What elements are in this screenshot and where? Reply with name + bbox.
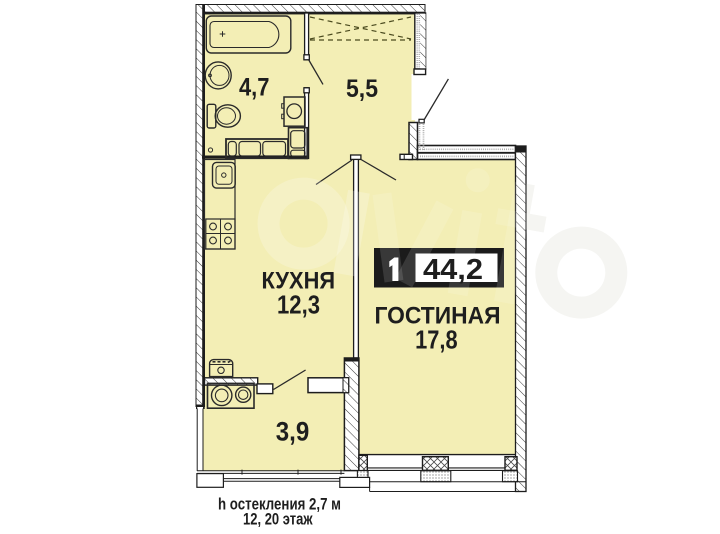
svg-text:12,3: 12,3 (277, 291, 320, 319)
svg-text:5,5: 5,5 (346, 75, 378, 103)
svg-text:4,7: 4,7 (239, 74, 270, 102)
svg-text:12, 20 этаж: 12, 20 этаж (243, 510, 313, 528)
svg-text:44,2: 44,2 (423, 254, 483, 286)
svg-text:КУХНЯ: КУХНЯ (262, 267, 336, 294)
svg-text:17,8: 17,8 (415, 326, 458, 354)
svg-text:ГОСТИНАЯ: ГОСТИНАЯ (375, 302, 501, 329)
svg-text:3,9: 3,9 (276, 416, 310, 446)
